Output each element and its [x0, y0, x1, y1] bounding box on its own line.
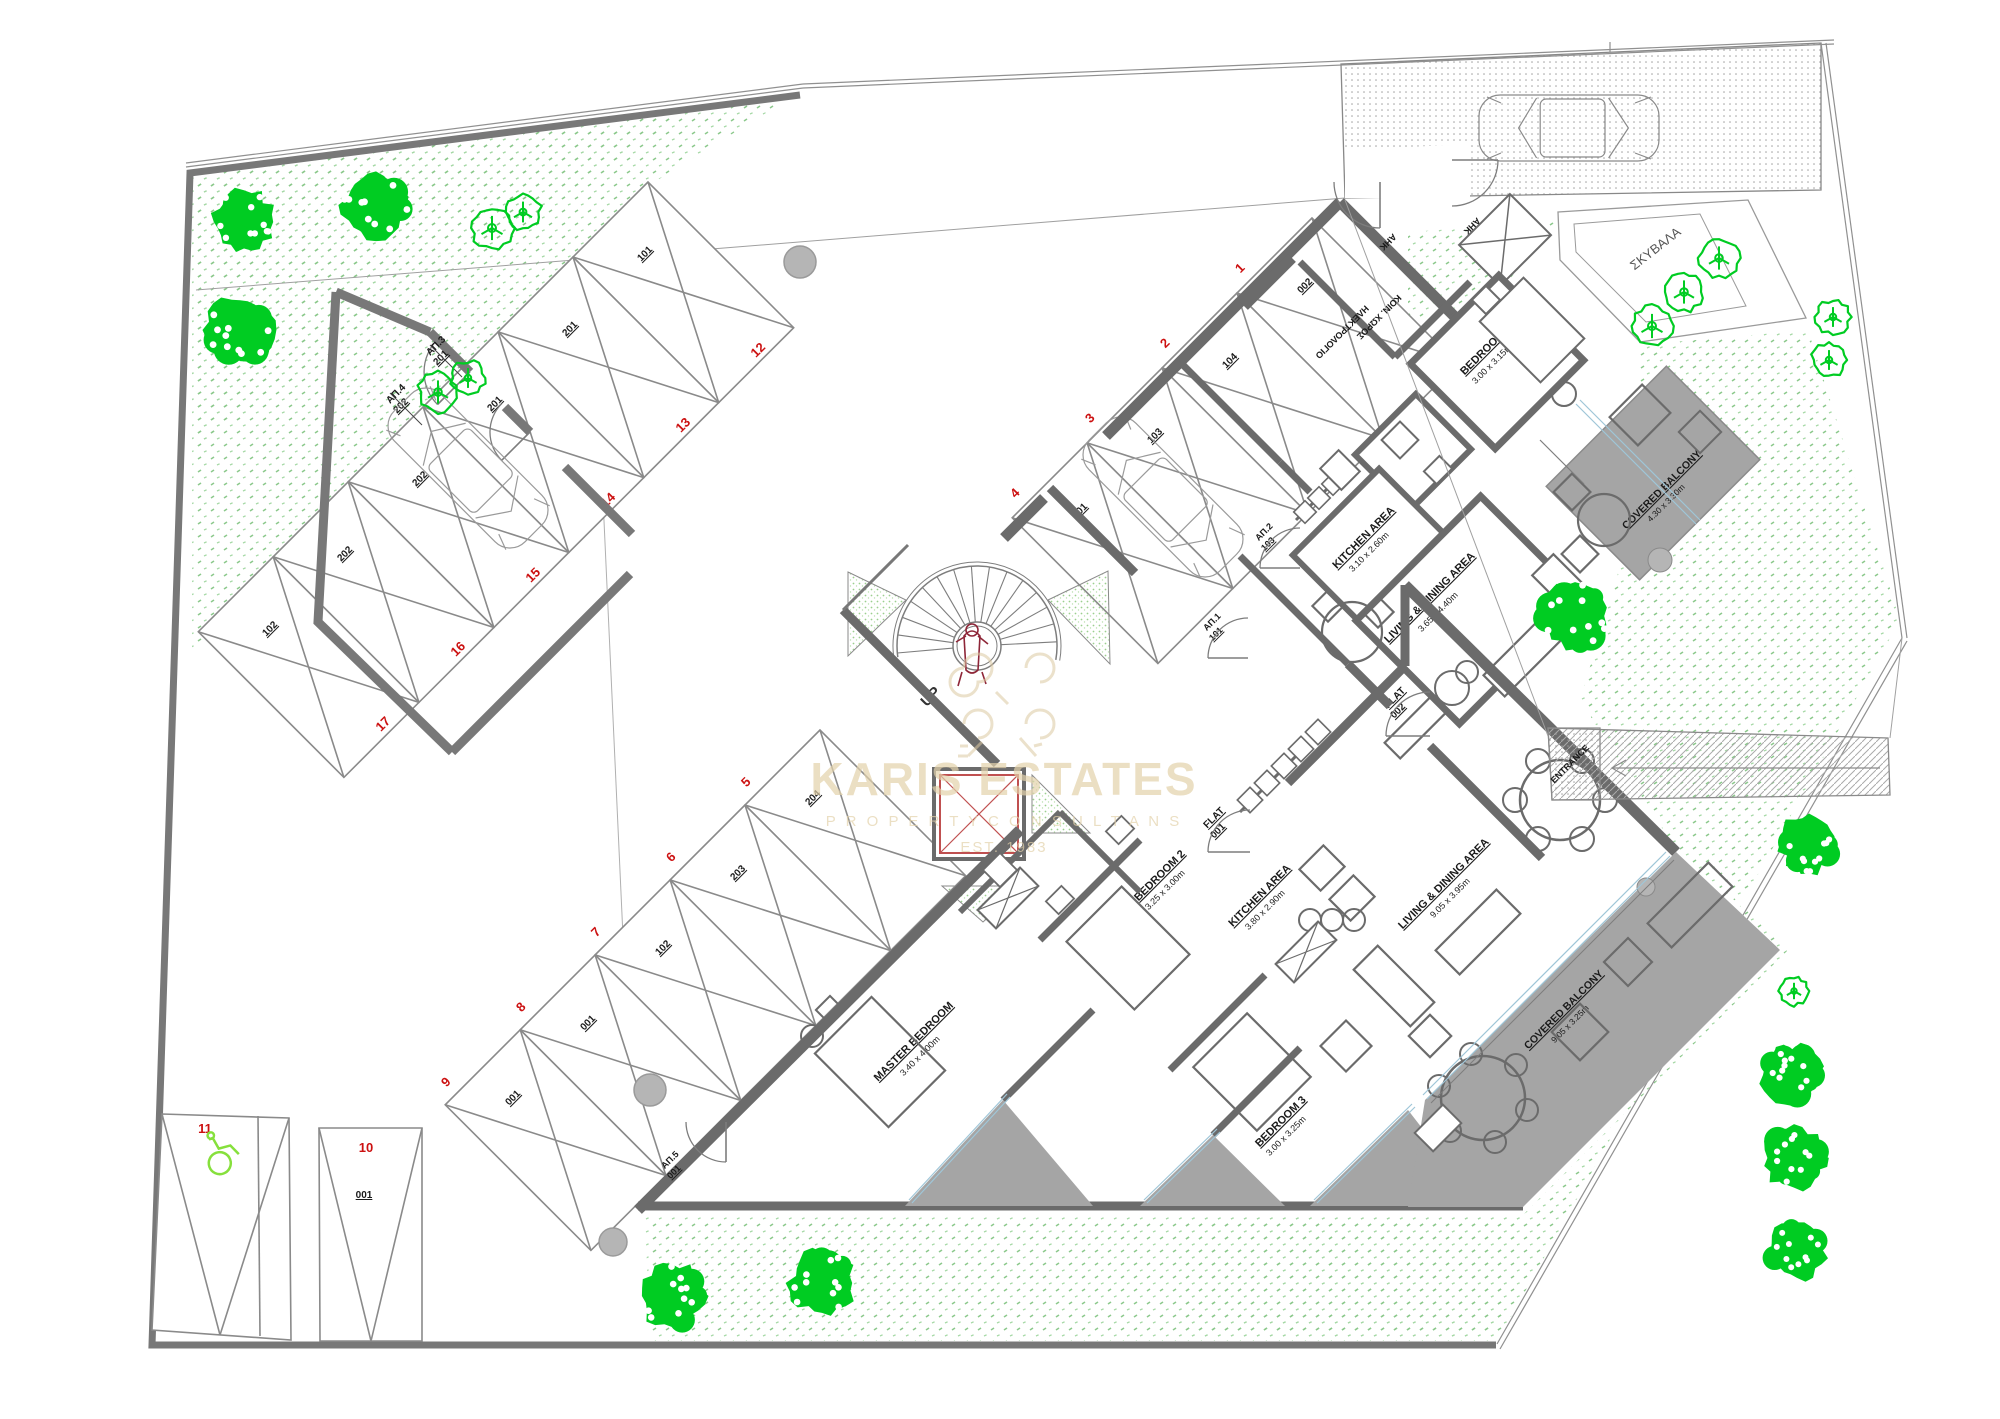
svg-text:10: 10	[359, 1140, 373, 1155]
svg-text:EST. 1983: EST. 1983	[960, 839, 1047, 856]
svg-text:KARIS ESTATES: KARIS ESTATES	[810, 753, 1197, 805]
svg-text:P R O P E R T Y C O N S U L: P R O P E R T Y C O N S U L T A N S	[826, 813, 1183, 830]
svg-text:001: 001	[356, 1190, 373, 1201]
